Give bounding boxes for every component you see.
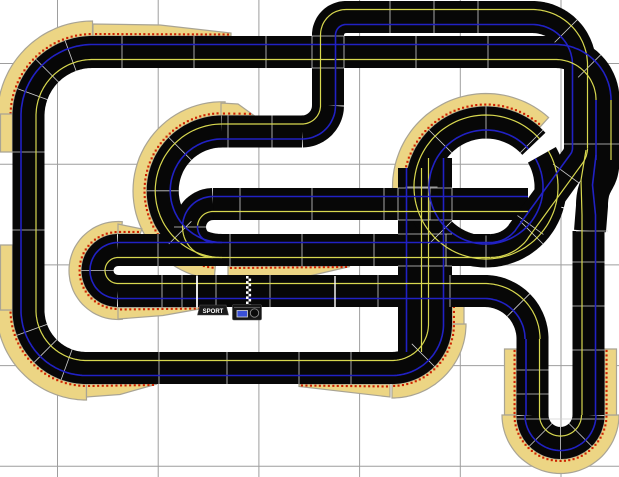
svg-text:SPORT: SPORT: [203, 309, 224, 315]
